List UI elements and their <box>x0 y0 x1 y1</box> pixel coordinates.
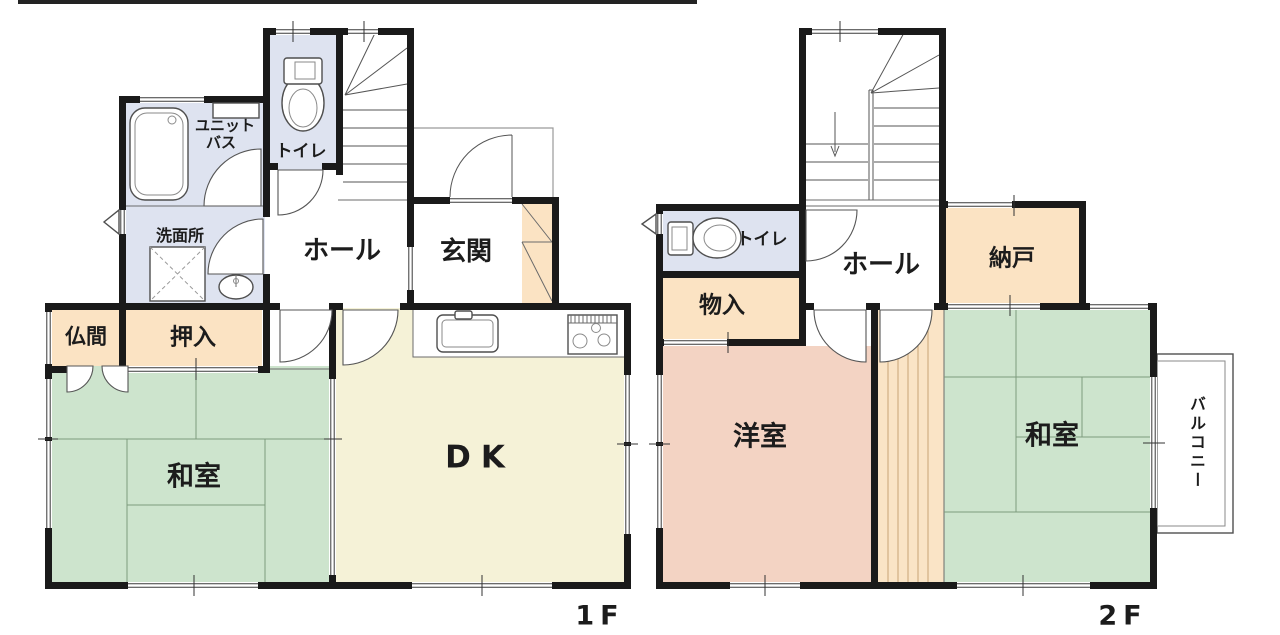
room-label-nando: 納戸 <box>989 248 1035 271</box>
room-label-unit-bath-line1: ユニット <box>195 119 255 134</box>
labels-layer: トイレ ユニット バス 洗面所 ホール 玄関 仏間 押入 和室 DK 1F トイ… <box>0 0 1280 635</box>
room-label-oshiire: 押入 <box>170 327 216 350</box>
room-label-balcony: バルコニー <box>1188 396 1204 491</box>
room-label-toilet-2f: トイレ <box>737 232 788 249</box>
room-label-hall-1f: ホール <box>303 238 381 264</box>
room-label-hall-2f: ホール <box>842 252 920 278</box>
room-label-washitsu-2f: 和室 <box>1025 423 1079 450</box>
floor-label-2f: 2F <box>1098 603 1147 630</box>
room-label-yoshitsu: 洋室 <box>733 424 787 451</box>
room-label-senmenjo: 洗面所 <box>156 228 204 244</box>
room-label-unit-bath-line2: バス <box>206 136 236 151</box>
room-label-toilet-1f: トイレ <box>276 144 327 161</box>
floorplan-canvas: トイレ ユニット バス 洗面所 ホール 玄関 仏間 押入 和室 DK 1F トイ… <box>0 0 1280 635</box>
room-label-genkan: 玄関 <box>440 239 492 265</box>
room-label-washitsu-1f: 和室 <box>167 464 221 491</box>
room-label-dk: DK <box>445 443 515 474</box>
room-label-monoire: 物入 <box>699 295 745 318</box>
room-label-butsuma: 仏間 <box>65 327 107 348</box>
floor-label-1f: 1F <box>575 603 624 630</box>
